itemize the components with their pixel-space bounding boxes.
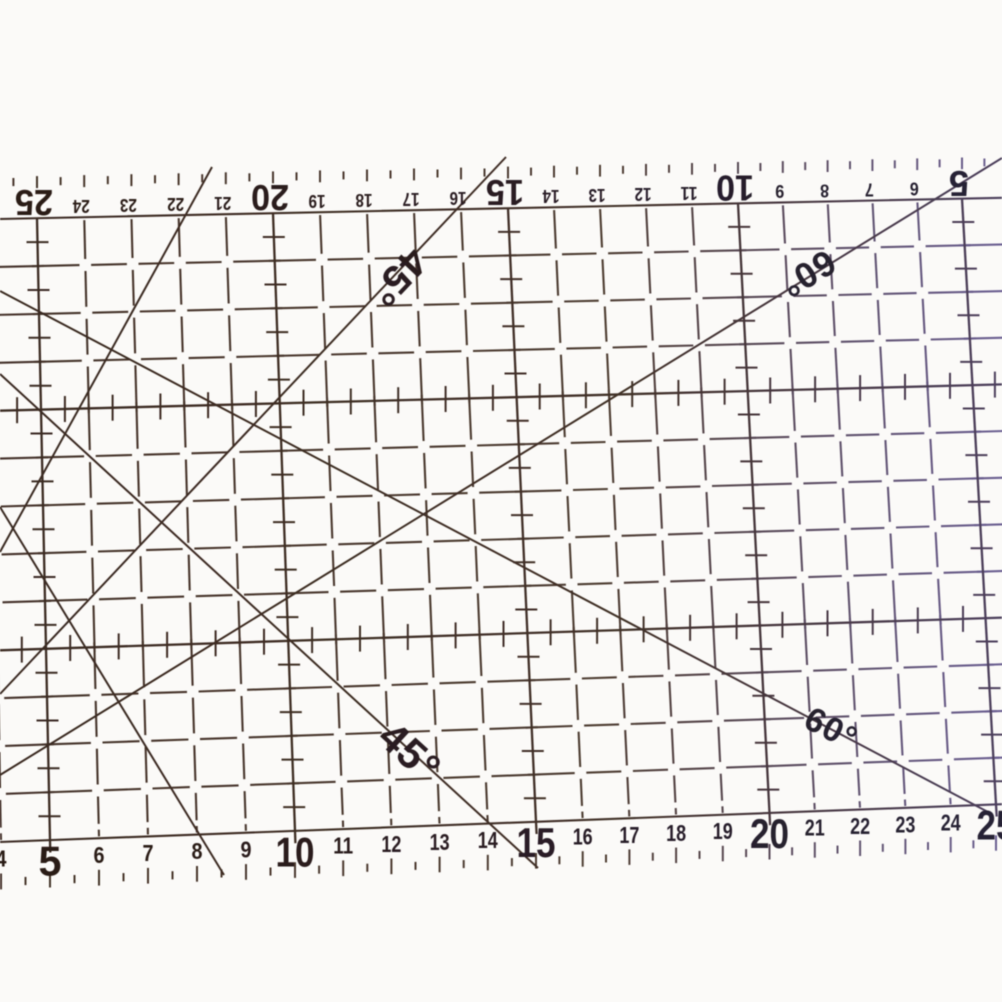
svg-text:25: 25 bbox=[15, 182, 53, 223]
svg-text:16: 16 bbox=[573, 824, 593, 850]
svg-text:11: 11 bbox=[333, 833, 353, 859]
svg-text:8: 8 bbox=[820, 180, 829, 200]
svg-text:21: 21 bbox=[805, 815, 825, 841]
svg-text:4: 4 bbox=[0, 846, 7, 872]
svg-text:14: 14 bbox=[543, 186, 560, 206]
svg-text:25: 25 bbox=[977, 802, 1002, 849]
svg-text:23: 23 bbox=[120, 195, 137, 215]
svg-text:7: 7 bbox=[865, 179, 874, 199]
svg-text:20: 20 bbox=[750, 810, 789, 857]
svg-text:7: 7 bbox=[143, 840, 154, 866]
svg-text:15: 15 bbox=[517, 819, 556, 866]
svg-text:11: 11 bbox=[681, 183, 698, 203]
svg-text:17: 17 bbox=[403, 189, 420, 209]
svg-text:5: 5 bbox=[39, 838, 62, 885]
svg-text:14: 14 bbox=[478, 827, 498, 853]
svg-text:12: 12 bbox=[635, 184, 652, 204]
svg-text:19: 19 bbox=[713, 818, 733, 844]
svg-text:10: 10 bbox=[716, 167, 754, 208]
svg-text:24: 24 bbox=[941, 810, 961, 836]
svg-text:22: 22 bbox=[167, 194, 184, 214]
svg-text:16: 16 bbox=[450, 188, 467, 208]
svg-text:22: 22 bbox=[850, 813, 870, 839]
svg-text:13: 13 bbox=[430, 829, 450, 855]
svg-text:18: 18 bbox=[356, 190, 373, 210]
svg-text:19: 19 bbox=[309, 191, 326, 211]
svg-text:8: 8 bbox=[192, 838, 203, 864]
svg-text:24: 24 bbox=[73, 196, 90, 216]
svg-text:5: 5 bbox=[949, 163, 969, 204]
svg-text:6: 6 bbox=[94, 842, 105, 868]
svg-text:9: 9 bbox=[241, 836, 252, 862]
svg-text:13: 13 bbox=[589, 185, 606, 205]
svg-text:15: 15 bbox=[486, 172, 524, 213]
svg-text:23: 23 bbox=[895, 811, 915, 837]
svg-text:20: 20 bbox=[251, 177, 289, 218]
svg-text:12: 12 bbox=[381, 831, 401, 857]
svg-text:10: 10 bbox=[276, 828, 315, 875]
svg-text:21: 21 bbox=[214, 193, 231, 213]
svg-text:18: 18 bbox=[666, 820, 686, 846]
svg-text:9: 9 bbox=[775, 181, 784, 201]
svg-text:17: 17 bbox=[619, 822, 639, 848]
svg-text:6: 6 bbox=[910, 178, 919, 198]
